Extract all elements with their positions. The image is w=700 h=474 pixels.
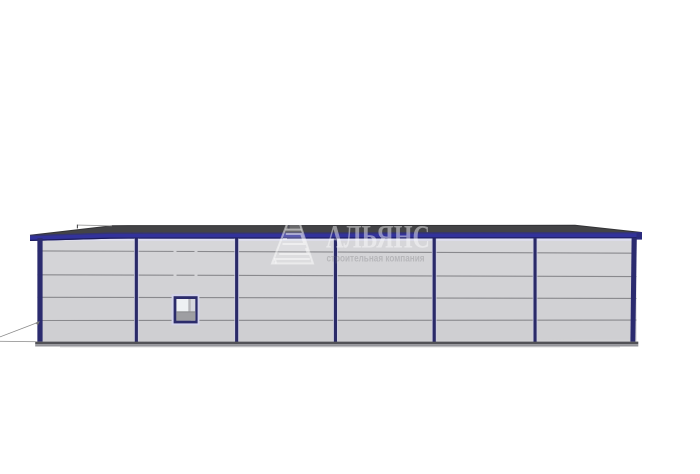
svg-text:строительная компания: строительная компания [327, 253, 425, 265]
svg-text:АЛЬЯНС: АЛЬЯНС [326, 220, 430, 256]
